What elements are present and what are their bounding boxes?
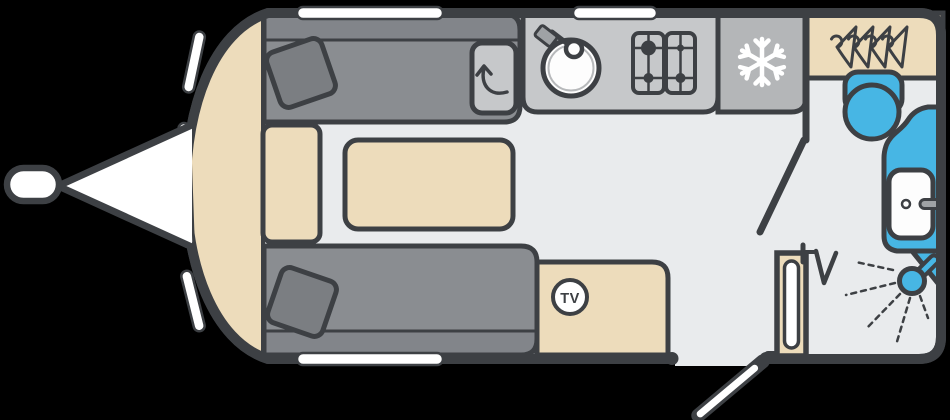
tow-hitch-ball [7,168,59,201]
basin-drain [902,200,910,208]
caravan-floorplan-page: TV [0,0,950,420]
window-top-kitchen [573,7,657,19]
tv-label: TV [560,291,580,307]
toilet-bowl [845,85,899,139]
burner-large [641,41,656,56]
table [345,140,513,229]
fridge [718,13,806,112]
window-bottom-front [297,353,443,365]
burner-medium [676,73,686,83]
burner-medium [644,73,654,83]
heater-vent [785,261,799,348]
caravan-floorplan: TV [0,0,950,420]
wardrobe [806,13,943,78]
front-storage-chest [263,125,320,242]
window-top-front [297,7,443,19]
bench-seat-bottom [264,246,537,355]
worktop-extension-flap [472,43,516,113]
tv-point-badge: TV [553,280,587,314]
tv-cabinet: TV [537,262,668,355]
toilet-icon [845,72,902,139]
door-jamb [666,352,679,365]
burner-small [677,45,684,52]
kitchen-worktop [523,13,718,112]
heater [777,253,806,356]
